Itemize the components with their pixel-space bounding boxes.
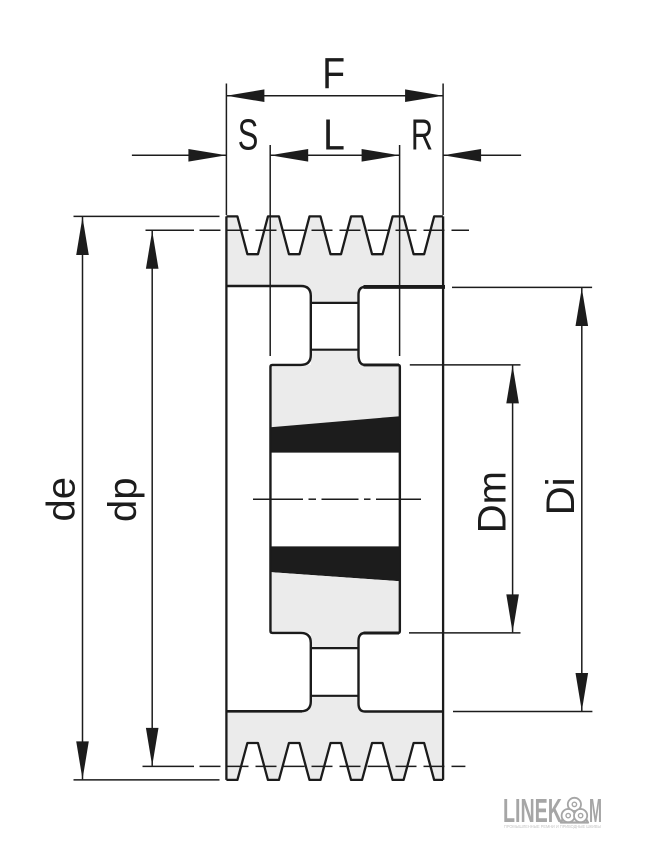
svg-text:Dm: Dm	[470, 471, 514, 533]
svg-text:de: de	[40, 477, 84, 522]
svg-text:Di: Di	[539, 478, 583, 516]
svg-text:S: S	[238, 112, 259, 160]
svg-text:F: F	[322, 50, 345, 98]
svg-text:R: R	[411, 111, 433, 159]
svg-text:ПРОМЫШЛЕННЫЕ РЕМНИ И ПРИВОДНЫЕ: ПРОМЫШЛЕННЫЕ РЕМНИ И ПРИВОДНЫЕ ШКИВЫ	[504, 824, 601, 829]
svg-text:L: L	[323, 112, 345, 160]
svg-text:dp: dp	[101, 477, 145, 522]
